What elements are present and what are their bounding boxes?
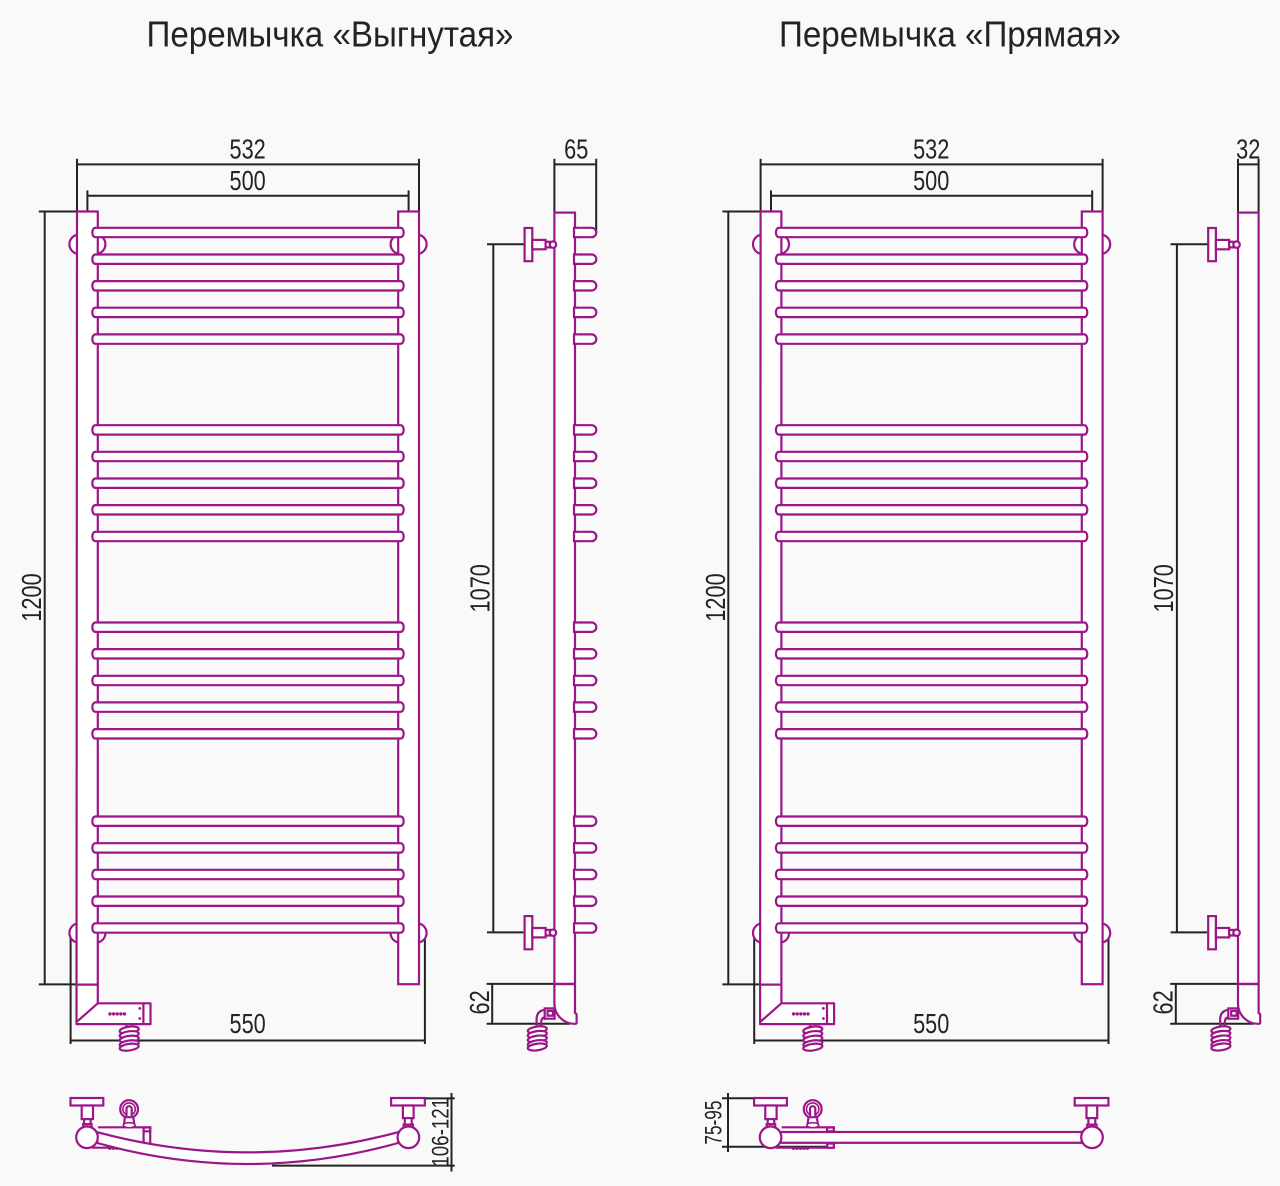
svg-text:550: 550 [913, 1010, 949, 1040]
svg-text:Перемычка «Выгнутая»: Перемычка «Выгнутая» [147, 14, 514, 55]
svg-text:Перемычка «Прямая»: Перемычка «Прямая» [779, 14, 1121, 55]
svg-text:532: 532 [229, 135, 265, 165]
svg-text:500: 500 [229, 167, 265, 197]
svg-text:500: 500 [913, 167, 949, 197]
svg-text:1070: 1070 [466, 564, 496, 612]
svg-text:32: 32 [1236, 135, 1260, 165]
svg-text:106-121: 106-121 [426, 1098, 454, 1167]
svg-text:62: 62 [466, 990, 496, 1014]
svg-text:65: 65 [564, 135, 588, 165]
svg-text:75-95: 75-95 [699, 1101, 727, 1145]
svg-text:1070: 1070 [1150, 564, 1180, 612]
svg-text:1200: 1200 [701, 573, 731, 621]
svg-text:550: 550 [229, 1010, 265, 1040]
svg-text:1200: 1200 [18, 573, 48, 621]
svg-text:62: 62 [1149, 990, 1179, 1014]
svg-text:532: 532 [913, 135, 949, 165]
